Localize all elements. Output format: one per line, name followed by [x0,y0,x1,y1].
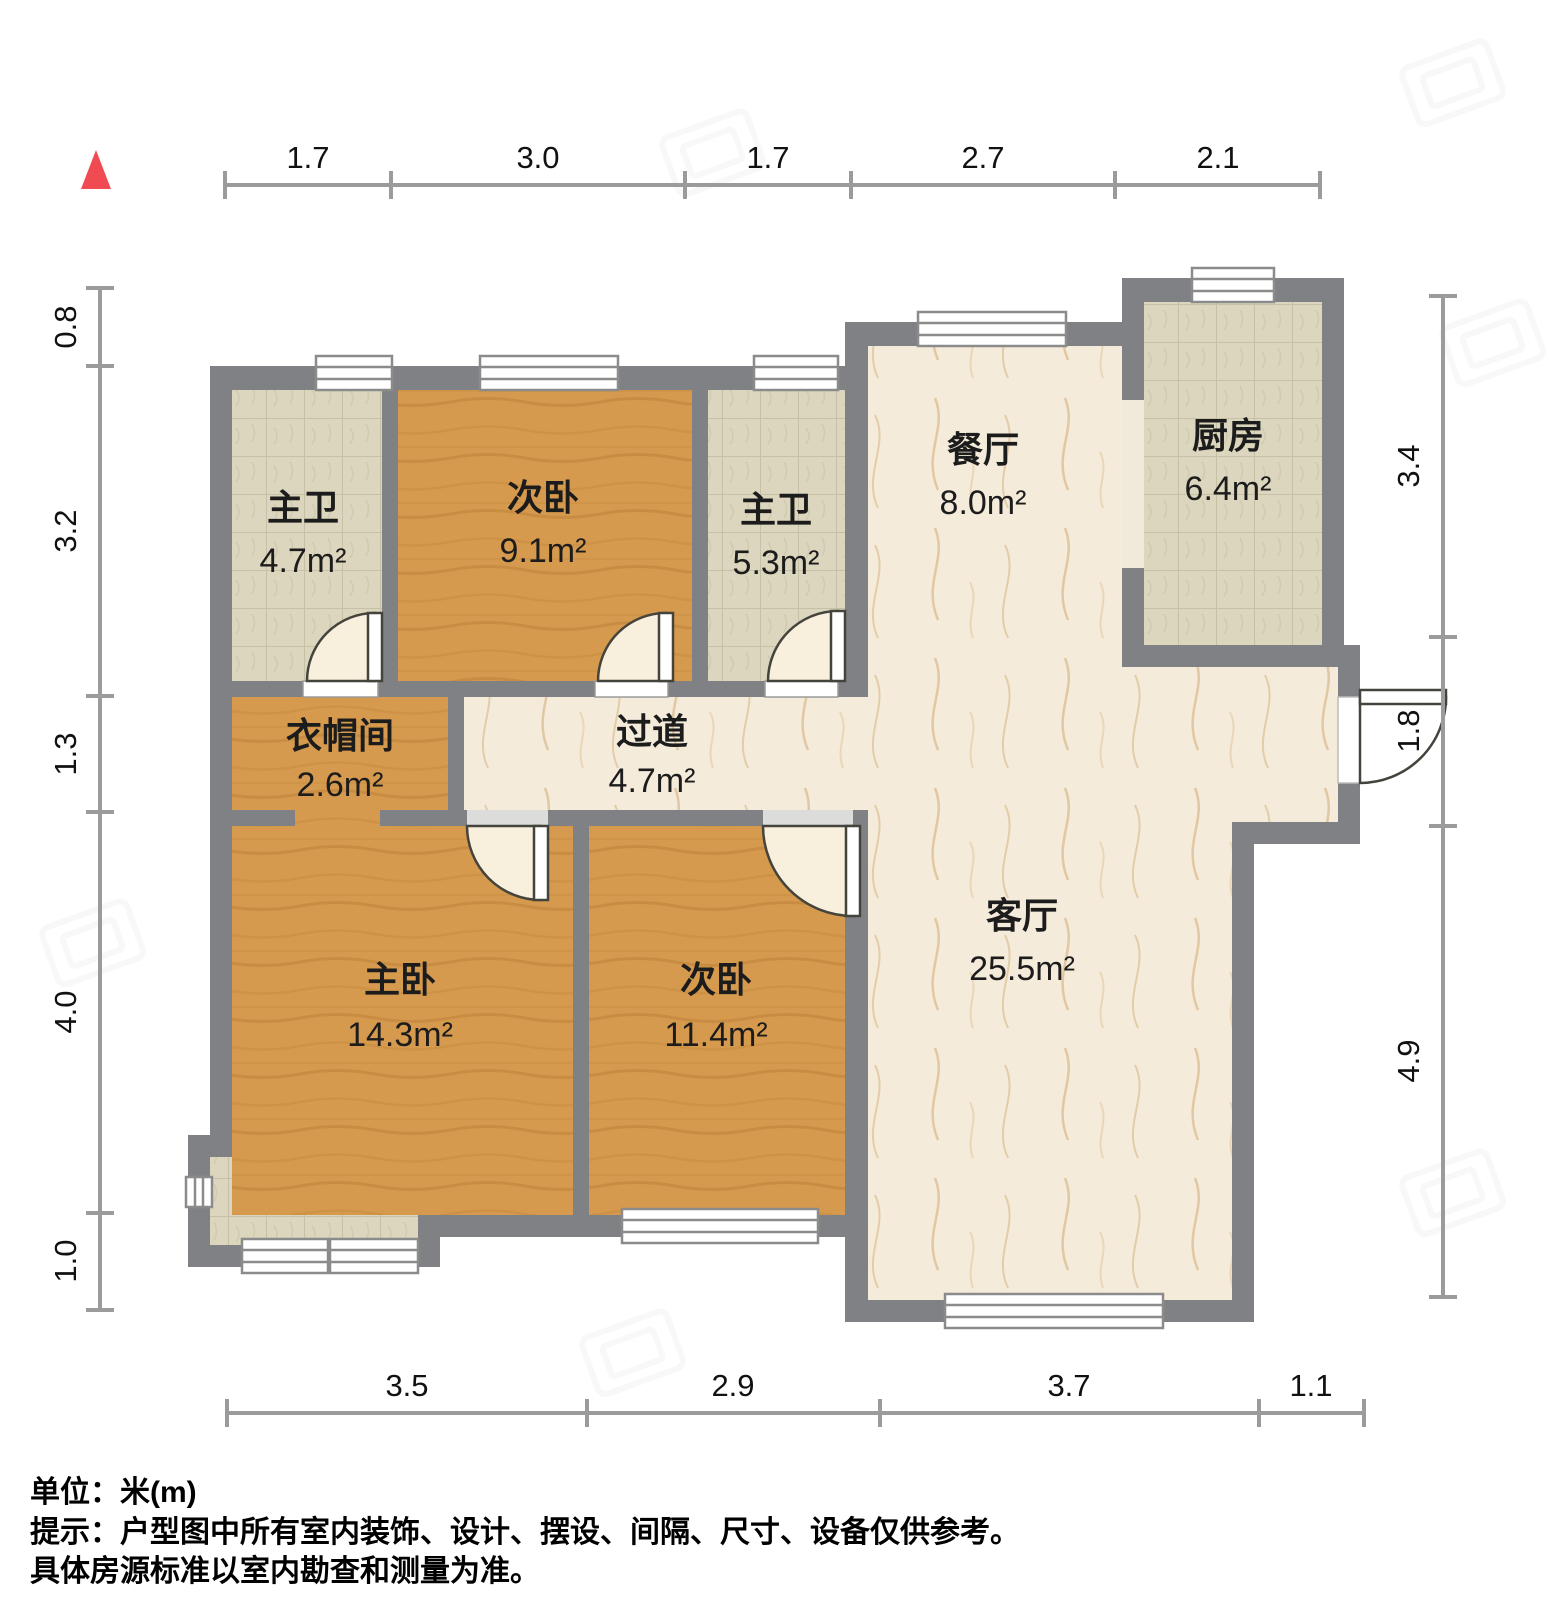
room-name: 主卫 [740,489,812,530]
room-area: 9.1m² [500,532,587,570]
wall-segment [1122,302,1144,400]
dim-label: 3.5 [385,1368,428,1403]
window-master-bath-2 [754,356,838,390]
dimension-chain-top: 1.7 3.0 1.7 2.7 2.1 [225,140,1320,199]
north-arrow-icon [81,150,111,189]
room-name: 衣帽间 [286,715,394,756]
wall-segment [1122,568,1144,645]
floorplan-svg: 主卫 4.7m² 次卧 9.1m² 主卫 5.3m² 餐厅 8.0m² 厨房 6… [0,0,1549,1601]
room-name: 客厅 [986,895,1058,936]
room-area: 5.3m² [733,544,820,582]
dimension-chain-right: 3.4 1.8 4.9 [1391,296,1457,1297]
window-bedroom-top [480,356,618,390]
window-kitchen [1192,268,1274,302]
dim-label: 2.1 [1196,140,1239,175]
dim-label: 4.9 [1391,1039,1426,1082]
wall-segment [1122,645,1360,667]
room-name: 次卧 [680,959,752,1000]
room-area: 14.3m² [347,1016,453,1054]
opening-entrance [1338,697,1360,783]
window-living [945,1294,1163,1328]
opening-cloakroom [295,810,380,826]
dim-label: 2.7 [961,140,1004,175]
wall-segment [1338,783,1360,844]
room-name: 餐厅 [947,429,1019,470]
room-name: 过道 [616,711,688,752]
window-dining [918,312,1066,346]
threshold-bedroom-2 [763,810,853,826]
wall-segment [573,826,589,1215]
wall-segment [418,1215,440,1267]
dim-label: 3.7 [1047,1368,1090,1403]
window-bay-side [186,1177,212,1207]
room-area: 11.4m² [664,1016,767,1054]
window-bay-right-pane [330,1239,418,1273]
dim-label: 1.3 [48,732,83,775]
room-name: 主卧 [364,959,436,1000]
room-area: 2.6m² [297,766,384,804]
dim-label: 4.0 [48,990,83,1033]
wall-segment [1232,822,1254,1322]
window-master-bath-1 [316,356,392,390]
disclaimer-line-1: 提示：户型图中所有室内装饰、设计、摆设、间隔、尺寸、设备仅供参考。 [30,1515,1020,1549]
wall-segment [188,1135,232,1157]
dimension-chain-bottom: 3.5 2.9 3.7 1.1 [227,1368,1364,1427]
threshold-bedroom-top [595,681,668,697]
threshold-master-bedroom [467,810,548,826]
room-area: 4.7m² [609,762,696,800]
room-floor-entry [1122,667,1338,822]
room-area: 4.7m² [260,542,347,580]
wall-segment [382,390,398,681]
window-bedroom-2 [622,1209,818,1243]
room-area: 6.4m² [1185,470,1272,508]
dim-label: 1.1 [1289,1368,1332,1403]
dimension-chain-left: 0.8 3.2 1.3 4.0 1.0 [48,288,114,1310]
dim-label: 1.7 [746,140,789,175]
room-name: 次卧 [507,477,579,518]
room-name: 主卫 [267,487,339,528]
room-name: 厨房 [1192,415,1264,456]
window-bay-left-pane [242,1239,328,1273]
footnotes: 单位：米(m) 提示：户型图中所有室内装饰、设计、摆设、间隔、尺寸、设备仅供参考… [30,1475,1020,1588]
unit-note: 单位：米(m) [30,1475,197,1509]
floorplan-canvas: 主卫 4.7m² 次卧 9.1m² 主卫 5.3m² 餐厅 8.0m² 厨房 6… [0,0,1549,1601]
wall-segment [1322,278,1344,667]
wall-segment [448,697,464,810]
threshold-master-bath-1 [303,681,378,697]
opening-kitchen [1122,400,1144,568]
disclaimer-line-2: 具体房源标准以室内勘查和测量为准。 [30,1554,540,1588]
dim-label: 3.4 [1391,444,1426,487]
dim-label: 3.0 [516,140,559,175]
threshold-master-bath-2 [765,681,838,697]
dim-label: 0.8 [48,305,83,348]
dim-label: 1.8 [1391,709,1426,752]
room-area: 8.0m² [940,484,1027,522]
dim-label: 1.7 [286,140,329,175]
wall-segment [692,390,708,681]
wall-segment [210,366,232,1157]
wall-segment [845,346,868,697]
room-area: 25.5m² [969,950,1075,988]
dim-label: 3.2 [48,509,83,552]
dim-label: 1.0 [48,1239,83,1282]
dim-label: 2.9 [711,1368,754,1403]
